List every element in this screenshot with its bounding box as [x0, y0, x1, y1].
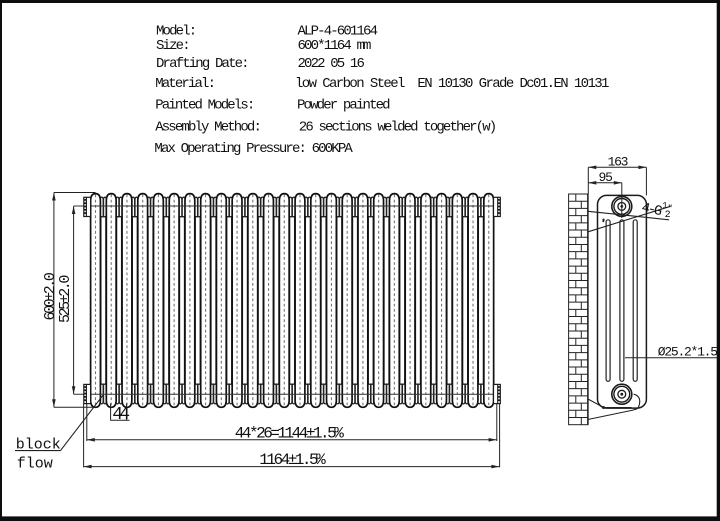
- svg-text:Max Operating Pressure: 600KPA: Max Operating Pressure: 600KPA: [154, 141, 353, 157]
- svg-text:ALP-4-601164: ALP-4-601164: [298, 23, 378, 39]
- svg-text:low Carbon Steel EN 10130 Gra: low Carbon Steel EN 10130 Grade Dc01.EN …: [295, 76, 609, 92]
- svg-text:Painted Models:: Painted Models:: [155, 98, 253, 114]
- svg-text:Assembly Method:: Assembly Method:: [155, 119, 260, 135]
- svg-text:Size:: Size:: [156, 38, 189, 54]
- svg-text:600*1164 mm: 600*1164 mm: [298, 38, 372, 54]
- svg-text:44*26=1144±1.5%: 44*26=1144±1.5%: [235, 424, 344, 442]
- svg-text:Drafting Date:: Drafting Date:: [156, 56, 248, 72]
- svg-text:″: ″: [668, 204, 673, 214]
- svg-text:Powder painted: Powder painted: [297, 98, 390, 114]
- svg-text:95: 95: [599, 170, 613, 185]
- svg-text:163: 163: [608, 155, 628, 170]
- svg-text:Material:: Material:: [155, 76, 214, 92]
- svg-text:2022 05 16: 2022 05 16: [298, 56, 365, 72]
- svg-text:Model:: Model:: [156, 23, 195, 39]
- svg-text:525±2.0: 525±2.0: [57, 275, 74, 323]
- svg-text:26 sections welded together(w): 26 sections welded together(w): [299, 119, 496, 135]
- svg-text:Ø25.2*1.5: Ø25.2*1.5: [658, 344, 717, 359]
- svg-text:1164±1.5%: 1164±1.5%: [259, 451, 326, 469]
- svg-text:flow: flow: [17, 456, 53, 473]
